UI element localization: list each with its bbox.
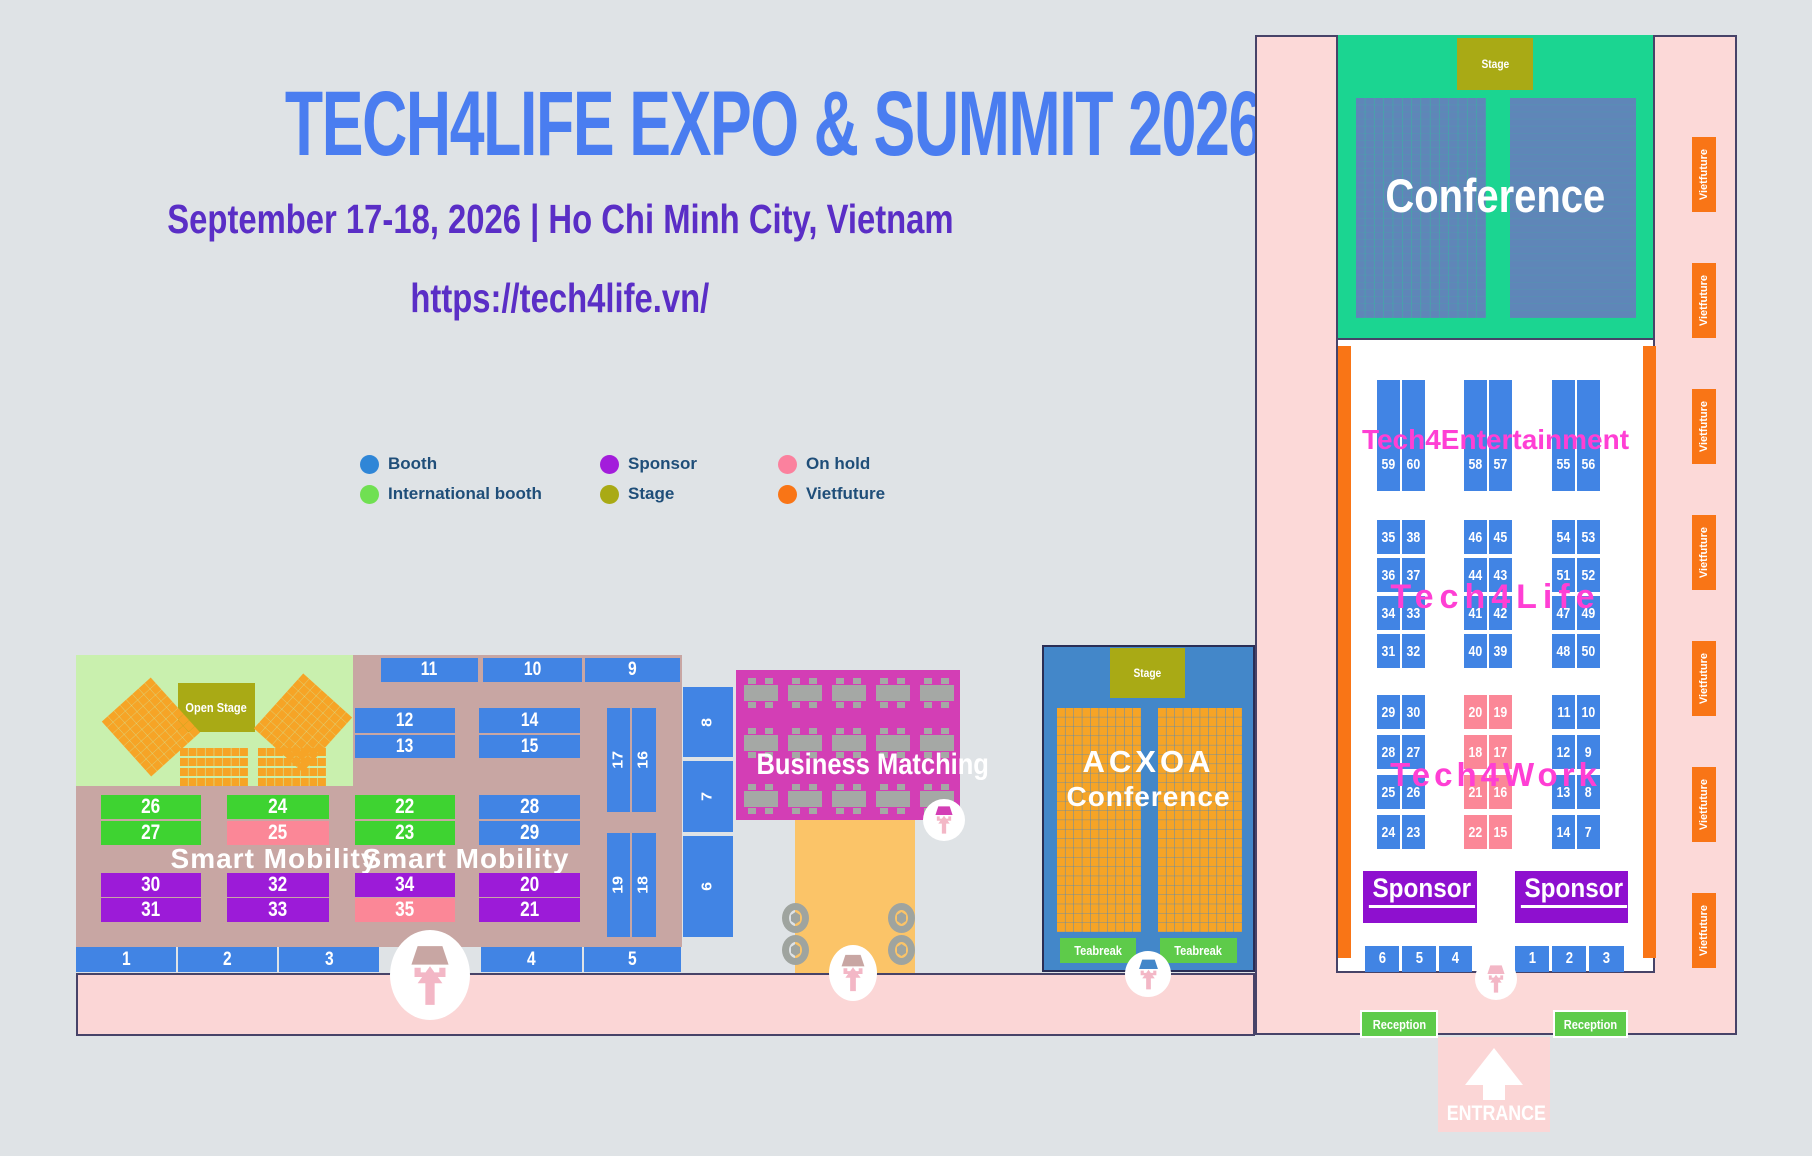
booth-number: 56 [1582,456,1596,473]
seat-dots [1158,708,1242,932]
booth-number: 35 [395,898,414,922]
booth-number: 50 [1582,643,1596,660]
right-booth-7[interactable]: 7 [1577,815,1600,849]
legend-color-dot [600,455,619,474]
booth-number: 8 [700,718,716,727]
booth-number: 26 [141,795,160,819]
right-booth-16[interactable]: 16 [1489,775,1512,809]
conference-stage: Stage [1457,38,1533,90]
right-booth-27[interactable]: 27 [1402,735,1425,769]
left-booth-15[interactable]: 15 [479,735,580,758]
booth-number: 57 [1494,456,1508,473]
booth-number: 58 [1469,456,1483,473]
right-booth-21[interactable]: 21 [1464,775,1487,809]
booth-number: 36 [1382,567,1396,584]
right-booth-24[interactable]: 24 [1377,815,1400,849]
left-booth-7[interactable]: 7 [683,761,733,832]
left-booth-24[interactable]: 24 [227,795,329,819]
booth-number: 17 [610,751,626,769]
legend-color-dot [778,485,797,504]
left-booth-8[interactable]: 8 [683,687,733,757]
right-booth-37[interactable]: 37 [1402,558,1425,592]
booth-number: 7 [700,792,716,801]
booth-number: 34 [1382,605,1396,622]
booth-number: 8 [1585,784,1592,801]
seat-dots [1057,708,1141,932]
right-booth-13[interactable]: 13 [1552,775,1575,809]
meeting-table-icon [744,784,778,814]
seat-dots [180,748,248,786]
meeting-table-icon [744,678,778,708]
entrance-door-icon [829,945,877,1001]
entrance-door-icon [390,930,470,1020]
right-booth-43[interactable]: 43 [1489,558,1512,592]
booth-number: 5 [628,949,637,971]
right-booth-15[interactable]: 15 [1489,815,1512,849]
booth-number: 55 [1557,456,1571,473]
booth-number: 41 [1469,605,1483,622]
booth-number: 54 [1557,529,1571,546]
booth-number: 51 [1557,567,1571,584]
meeting-table-icon [788,678,822,708]
right-front-booth-2[interactable]: 2 [1552,946,1586,972]
left-booth-28[interactable]: 28 [479,795,580,819]
right-booth-46[interactable]: 46 [1464,520,1487,554]
header: TECH4LIFE EXPO & SUMMIT 2026 September 1… [55,78,1065,322]
vietfuture-dashed-border [1338,346,1351,958]
right-booth-19[interactable]: 19 [1489,695,1512,729]
booth-number: 37 [1407,567,1421,584]
right-booth-47[interactable]: 47 [1552,596,1575,630]
booth-number: 59 [1382,456,1396,473]
booth-number: 19 [610,876,626,894]
sponsor-area-1[interactable]: Sponsor [1363,871,1477,923]
left-booth-16[interactable]: 16 [632,708,656,812]
booth-number: 23 [1407,824,1421,841]
booth-number: 6 [1378,950,1385,968]
right-booth-14[interactable]: 14 [1552,815,1575,849]
legend-label: Stage [628,484,674,504]
right-booth-49[interactable]: 49 [1577,596,1600,630]
booth-number: 31 [1382,643,1396,660]
left-booth-32[interactable]: 32 [227,873,329,897]
right-booth-60[interactable]: 60 [1402,380,1425,491]
conference-hall-label: Conference [1336,168,1655,223]
booth-number: 6 [700,882,716,891]
left-booth-1[interactable]: 1 [76,947,176,972]
right-booth-35[interactable]: 35 [1377,520,1400,554]
booth-number: 12 [1557,744,1571,761]
booth-number: 19 [1494,704,1508,721]
entrance-door-icon [1125,951,1171,997]
vietfuture-tab: Vietfuture [1692,263,1716,338]
left-booth-10[interactable]: 10 [483,658,582,682]
meeting-table-icon [920,678,954,708]
left-booth-9[interactable]: 9 [585,658,680,682]
right-booth-33[interactable]: 33 [1402,596,1425,630]
booth-number: 28 [520,795,539,819]
legend-item-booth: Booth [360,452,437,476]
booth-number: 30 [141,873,160,897]
booth-number: 44 [1469,567,1483,584]
booth-number: 9 [628,659,637,681]
left-booth-5[interactable]: 5 [584,947,681,972]
vietfuture-tab: Vietfuture [1692,641,1716,716]
booth-number: 49 [1582,605,1596,622]
walkway [76,973,1255,1036]
entrance-arrow-icon [1465,1048,1523,1085]
legend-color-dot [360,455,379,474]
booth-number: 4 [527,949,536,971]
right-booth-10[interactable]: 10 [1577,695,1600,729]
right-booth-25[interactable]: 25 [1377,775,1400,809]
left-booth-34[interactable]: 34 [355,873,455,897]
booth-number: 24 [1382,824,1396,841]
left-booth-14[interactable]: 14 [479,708,580,733]
scooter-icon [782,935,809,965]
booth-number: 1 [122,949,131,971]
booth-number: 17 [1494,744,1508,761]
booth-number: 18 [1469,744,1483,761]
booth-number: 52 [1582,567,1596,584]
meeting-table-icon [876,784,910,814]
right-booth-8[interactable]: 8 [1577,775,1600,809]
legend-label: International booth [388,484,542,504]
acxoa-stage: Stage [1110,648,1185,698]
booth-number: 43 [1494,567,1508,584]
legend-item-on-hold: On hold [778,452,870,476]
event-title: TECH4LIFE EXPO & SUMMIT 2026 [55,78,1065,170]
left-booth-18[interactable]: 18 [632,833,656,937]
booth-number: 11 [421,659,437,681]
left-booth-13[interactable]: 13 [355,735,455,758]
zone-label-smart-mobility-2: Smart Mobility [336,843,596,875]
vietfuture-tab: Vietfuture [1692,389,1716,464]
booth-number: 2 [223,949,232,971]
left-booth-17[interactable]: 17 [607,708,630,812]
business-matching-label: Business Matching [736,748,960,782]
left-booth-11[interactable]: 11 [381,658,478,682]
right-booth-23[interactable]: 23 [1402,815,1425,849]
booth-number: 11 [1557,704,1570,721]
right-booth-12[interactable]: 12 [1552,735,1575,769]
right-booth-9[interactable]: 9 [1577,735,1600,769]
left-booth-23[interactable]: 23 [355,821,455,845]
right-booth-56[interactable]: 56 [1577,380,1600,491]
legend-item-international-booth: International booth [360,482,542,506]
vietfuture-tab: Vietfuture [1692,515,1716,590]
right-booth-30[interactable]: 30 [1402,695,1425,729]
scooter-icon [782,903,809,933]
booth-number: 48 [1557,643,1571,660]
legend-item-stage: Stage [600,482,674,506]
booth-number: 13 [1557,784,1571,801]
right-booth-38[interactable]: 38 [1402,520,1425,554]
acxoa-title-line1: ACXOA [1042,744,1255,780]
booth-number: 47 [1557,605,1571,622]
sponsor-area-2[interactable]: Sponsor [1515,871,1628,923]
booth-number: 26 [1407,784,1421,801]
right-booth-29[interactable]: 29 [1377,695,1400,729]
booth-number: 4 [1452,950,1459,968]
meeting-table-icon [876,678,910,708]
booth-number: 12 [396,710,413,732]
booth-number: 29 [1382,704,1396,721]
right-booth-45[interactable]: 45 [1489,520,1512,554]
right-booth-36[interactable]: 36 [1377,558,1400,592]
right-booth-18[interactable]: 18 [1464,735,1487,769]
booth-number: 32 [1407,643,1421,660]
booth-number: 34 [395,873,414,897]
booth-number: 10 [1582,704,1596,721]
legend-item-vietfuture: Vietfuture [778,482,885,506]
booth-number: 35 [1382,529,1396,546]
right-booth-50[interactable]: 50 [1577,634,1600,668]
legend-label: Vietfuture [806,484,885,504]
right-front-booth-5[interactable]: 5 [1402,946,1436,972]
booth-number: 29 [520,821,539,845]
right-booth-59[interactable]: 59 [1377,380,1400,491]
left-booth-21[interactable]: 21 [479,898,580,922]
right-booth-48[interactable]: 48 [1552,634,1575,668]
left-booth-12[interactable]: 12 [355,708,455,733]
legend-label: Sponsor [628,454,697,474]
meeting-table-icon [832,678,866,708]
left-booth-26[interactable]: 26 [101,795,201,819]
booth-number: 23 [395,821,414,845]
right-front-booth-6[interactable]: 6 [1365,946,1399,972]
booth-number: 10 [524,659,541,681]
left-booth-20[interactable]: 20 [479,873,580,897]
booth-number: 3 [1603,950,1610,968]
entrance-door-icon [923,799,965,841]
booth-number: 21 [1469,784,1483,801]
right-booth-34[interactable]: 34 [1377,596,1400,630]
right-booth-55[interactable]: 55 [1552,380,1575,491]
booth-number: 15 [521,736,538,758]
booth-number: 24 [268,795,287,819]
booth-number: 22 [395,795,414,819]
booth-number: 20 [520,873,539,897]
left-booth-33[interactable]: 33 [227,898,329,922]
booth-number: 16 [636,751,652,769]
booth-number: 33 [1407,605,1421,622]
vietfuture-tab: Vietfuture [1692,137,1716,212]
right-booth-11[interactable]: 11 [1552,695,1575,729]
scooter-icon [888,935,915,965]
vietfuture-tab: Vietfuture [1692,893,1716,968]
booth-number: 38 [1407,529,1421,546]
legend-label: Booth [388,454,437,474]
meeting-table-icon [832,784,866,814]
right-booth-42[interactable]: 42 [1489,596,1512,630]
seat-dots [258,748,326,786]
booth-number: 14 [1557,824,1571,841]
expo-floor-plan: TECH4LIFE EXPO & SUMMIT 2026 September 1… [0,0,1812,1156]
booth-number: 2 [1565,950,1572,968]
left-booth-6[interactable]: 6 [683,836,733,937]
right-front-booth-4[interactable]: 4 [1439,946,1472,972]
legend-item-sponsor: Sponsor [600,452,697,476]
right-booth-32[interactable]: 32 [1402,634,1425,668]
booth-number: 25 [268,821,287,845]
teabreak-2: Teabreak [1160,938,1237,963]
right-front-booth-3[interactable]: 3 [1589,946,1624,972]
right-booth-28[interactable]: 28 [1377,735,1400,769]
right-booth-53[interactable]: 53 [1577,520,1600,554]
right-booth-51[interactable]: 51 [1552,558,1575,592]
booth-number: 13 [396,736,413,758]
left-booth-2[interactable]: 2 [178,947,277,972]
left-booth-35[interactable]: 35 [355,898,455,922]
entrance-door-icon [1475,958,1517,1000]
legend-color-dot [778,455,797,474]
booth-number: 53 [1582,529,1596,546]
booth-number: 22 [1469,824,1483,841]
booth-number: 18 [636,876,652,894]
booth-number: 40 [1469,643,1483,660]
left-booth-22[interactable]: 22 [355,795,455,819]
booth-number: 46 [1469,529,1483,546]
left-booth-4[interactable]: 4 [481,947,582,972]
acxoa-title-line2: Conference [1042,781,1255,813]
scooter-icon [888,903,915,933]
vietfuture-tab: Vietfuture [1692,767,1716,842]
booth-number: 7 [1585,824,1592,841]
booth-number: 42 [1494,605,1508,622]
booth-number: 15 [1494,824,1508,841]
left-booth-29[interactable]: 29 [479,821,580,845]
booth-number: 20 [1469,704,1483,721]
booth-number: 9 [1585,744,1592,761]
booth-number: 14 [521,710,538,732]
legend-color-dot [360,485,379,504]
booth-number: 21 [520,898,539,922]
booth-number: 30 [1407,704,1421,721]
reception-1: Reception [1360,1010,1438,1038]
booth-number: 25 [1382,784,1396,801]
right-booth-54[interactable]: 54 [1552,520,1575,554]
booth-number: 27 [1407,744,1421,761]
booth-number: 31 [141,898,160,922]
left-booth-27[interactable]: 27 [101,821,201,845]
legend-label: On hold [806,454,870,474]
event-url: https://tech4life.vn/ [55,275,1065,322]
right-front-booth-1[interactable]: 1 [1515,946,1549,972]
booth-number: 1 [1528,950,1535,968]
right-booth-44[interactable]: 44 [1464,558,1487,592]
left-booth-3[interactable]: 3 [279,947,379,972]
booth-number: 45 [1494,529,1508,546]
meeting-table-icon [788,784,822,814]
entrance-arrow-stem [1483,1085,1505,1100]
right-booth-40[interactable]: 40 [1464,634,1487,668]
right-booth-58[interactable]: 58 [1464,380,1487,491]
booth-number: 60 [1407,456,1421,473]
right-booth-26[interactable]: 26 [1402,775,1425,809]
event-subtitle: September 17-18, 2026 | Ho Chi Minh City… [55,196,1065,243]
booth-number: 39 [1494,643,1508,660]
booth-number: 5 [1415,950,1422,968]
right-booth-41[interactable]: 41 [1464,596,1487,630]
right-booth-52[interactable]: 52 [1577,558,1600,592]
booth-number: 28 [1382,744,1396,761]
left-booth-19[interactable]: 19 [607,833,630,937]
booth-number: 16 [1494,784,1508,801]
entrance-label: ENTRANCE [1438,1102,1550,1126]
booth-number: 27 [141,821,160,845]
legend-color-dot [600,485,619,504]
booth-number: 32 [268,873,287,897]
right-booth-22[interactable]: 22 [1464,815,1487,849]
left-booth-25[interactable]: 25 [227,821,329,845]
reception-2: Reception [1553,1010,1628,1038]
right-booth-57[interactable]: 57 [1489,380,1512,491]
booth-number: 33 [268,898,287,922]
booth-number: 3 [325,949,334,971]
left-booth-30[interactable]: 30 [101,873,201,897]
left-booth-31[interactable]: 31 [101,898,201,922]
vietfuture-dashed-border [1643,346,1656,958]
right-booth-20[interactable]: 20 [1464,695,1487,729]
right-booth-31[interactable]: 31 [1377,634,1400,668]
teabreak-1: Teabreak [1060,938,1136,963]
right-booth-39[interactable]: 39 [1489,634,1512,668]
right-booth-17[interactable]: 17 [1489,735,1512,769]
